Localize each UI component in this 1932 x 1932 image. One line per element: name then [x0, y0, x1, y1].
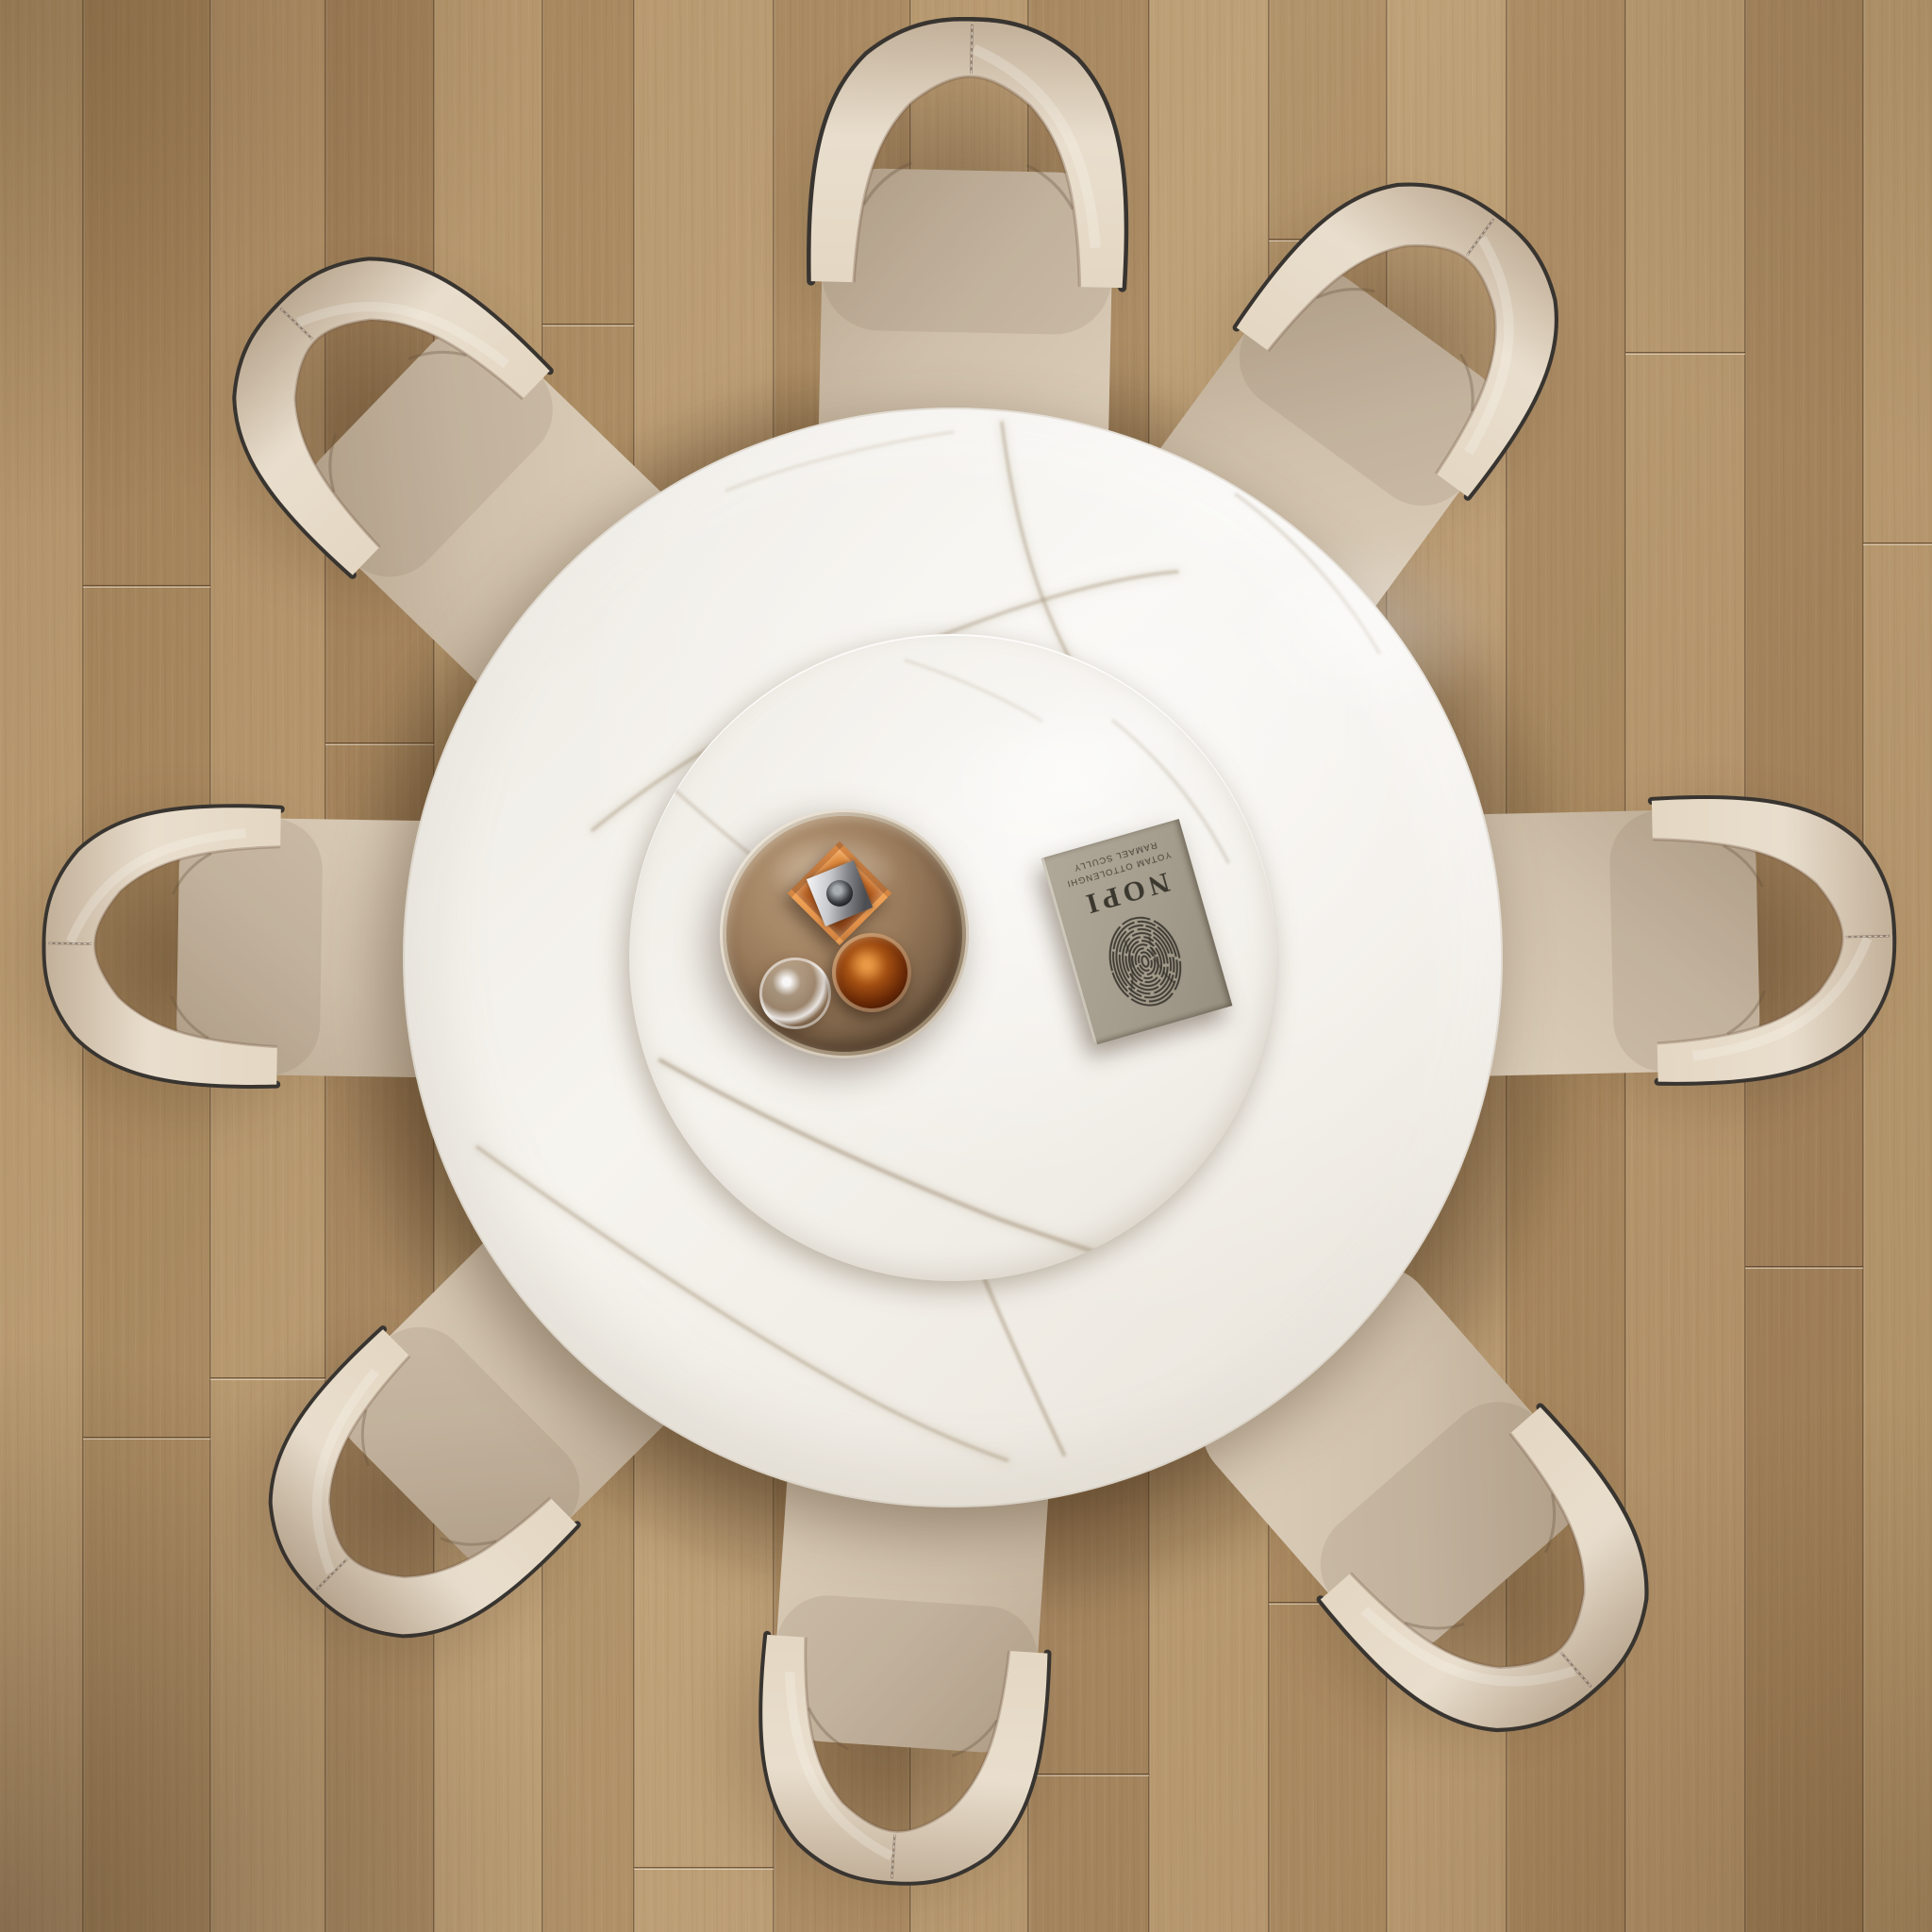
whiskey-gleam	[843, 941, 891, 989]
scene-root: NOPI YOTAM OTTOLENGHI RAMAEL SCULLY	[0, 0, 1932, 1932]
plank-end-joint	[1863, 542, 1932, 545]
plank-end-joint	[83, 585, 210, 588]
fingerprint-graphic	[1090, 902, 1201, 1024]
whiskey-glass	[832, 933, 911, 1012]
plank-end-joint	[1625, 352, 1745, 355]
plank-end-joint	[1745, 1266, 1863, 1269]
plank-end-joint	[542, 324, 634, 326]
bottle-nozzle	[826, 880, 853, 907]
dining-chair-east	[1435, 782, 1899, 1100]
clear-drinking-glass	[759, 958, 831, 1029]
chair-graphic	[1435, 782, 1899, 1100]
plank-end-joint	[83, 1437, 210, 1440]
